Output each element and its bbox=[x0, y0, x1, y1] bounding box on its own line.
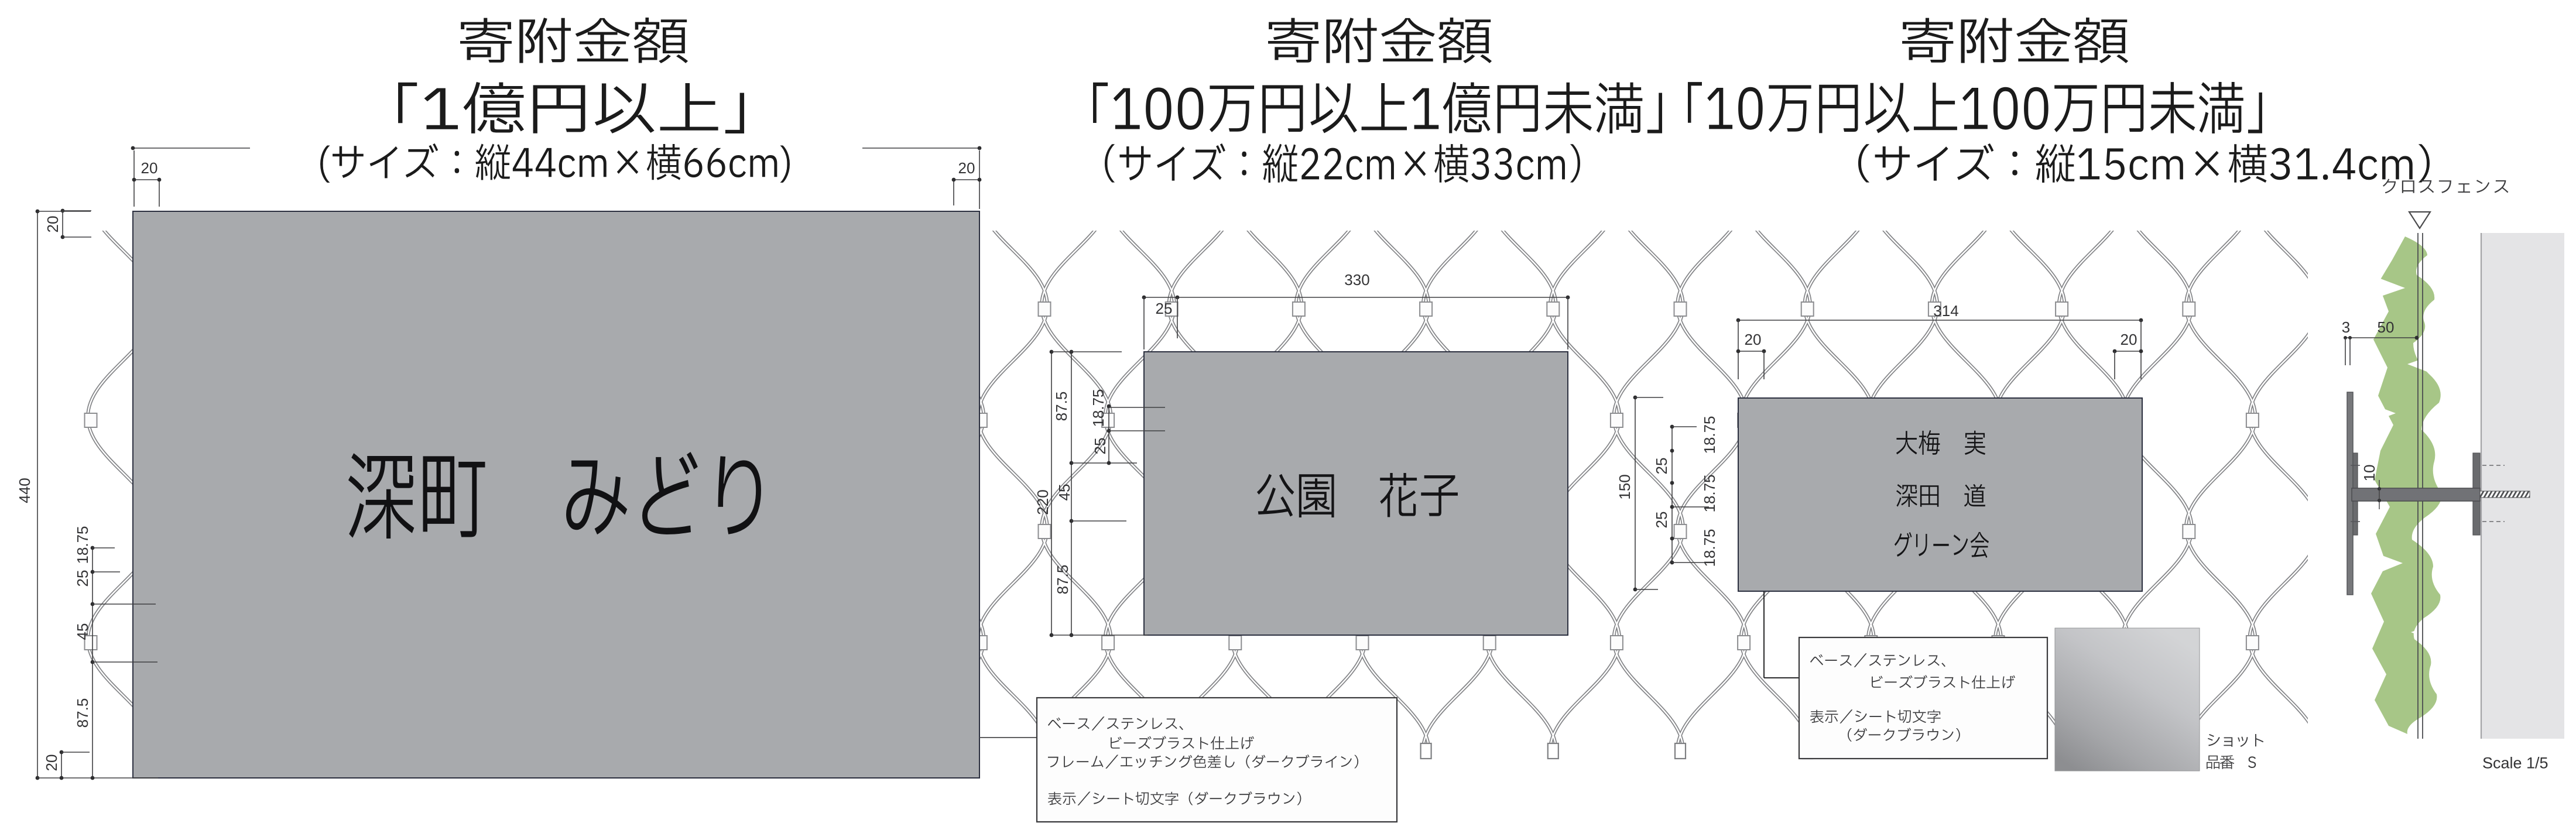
svg-text:18.75: 18.75 bbox=[1090, 389, 1107, 427]
svg-text:20: 20 bbox=[958, 159, 975, 177]
svg-text:87.5: 87.5 bbox=[74, 698, 91, 728]
svg-text:25: 25 bbox=[1653, 458, 1670, 475]
svg-text:18.75: 18.75 bbox=[74, 526, 91, 564]
svg-text:25: 25 bbox=[1091, 438, 1109, 455]
svg-text:Scale 1/5: Scale 1/5 bbox=[2482, 755, 2548, 772]
svg-text:150: 150 bbox=[1616, 474, 1633, 499]
svg-text:330: 330 bbox=[1344, 271, 1369, 289]
svg-text:20: 20 bbox=[2121, 331, 2137, 348]
svg-text:25: 25 bbox=[74, 570, 91, 587]
svg-text:18.75: 18.75 bbox=[1701, 474, 1718, 512]
svg-text:25: 25 bbox=[1156, 300, 1173, 317]
svg-text:440: 440 bbox=[16, 478, 33, 503]
svg-text:10: 10 bbox=[2361, 465, 2378, 482]
svg-text:87.5: 87.5 bbox=[1054, 565, 1071, 595]
svg-text:3: 3 bbox=[2342, 318, 2350, 336]
svg-text:87.5: 87.5 bbox=[1053, 392, 1070, 421]
svg-text:20: 20 bbox=[141, 159, 158, 177]
svg-text:18.75: 18.75 bbox=[1701, 529, 1718, 567]
svg-text:20: 20 bbox=[1745, 331, 1762, 348]
svg-text:50: 50 bbox=[2378, 318, 2395, 336]
svg-text:45: 45 bbox=[1056, 484, 1073, 501]
svg-text:314: 314 bbox=[1933, 302, 1958, 320]
svg-text:20: 20 bbox=[44, 216, 61, 233]
svg-text:18.75: 18.75 bbox=[1701, 416, 1718, 454]
svg-text:20: 20 bbox=[43, 755, 60, 771]
svg-text:220: 220 bbox=[1034, 489, 1051, 515]
svg-text:25: 25 bbox=[1653, 512, 1670, 529]
svg-text:45: 45 bbox=[74, 623, 91, 640]
